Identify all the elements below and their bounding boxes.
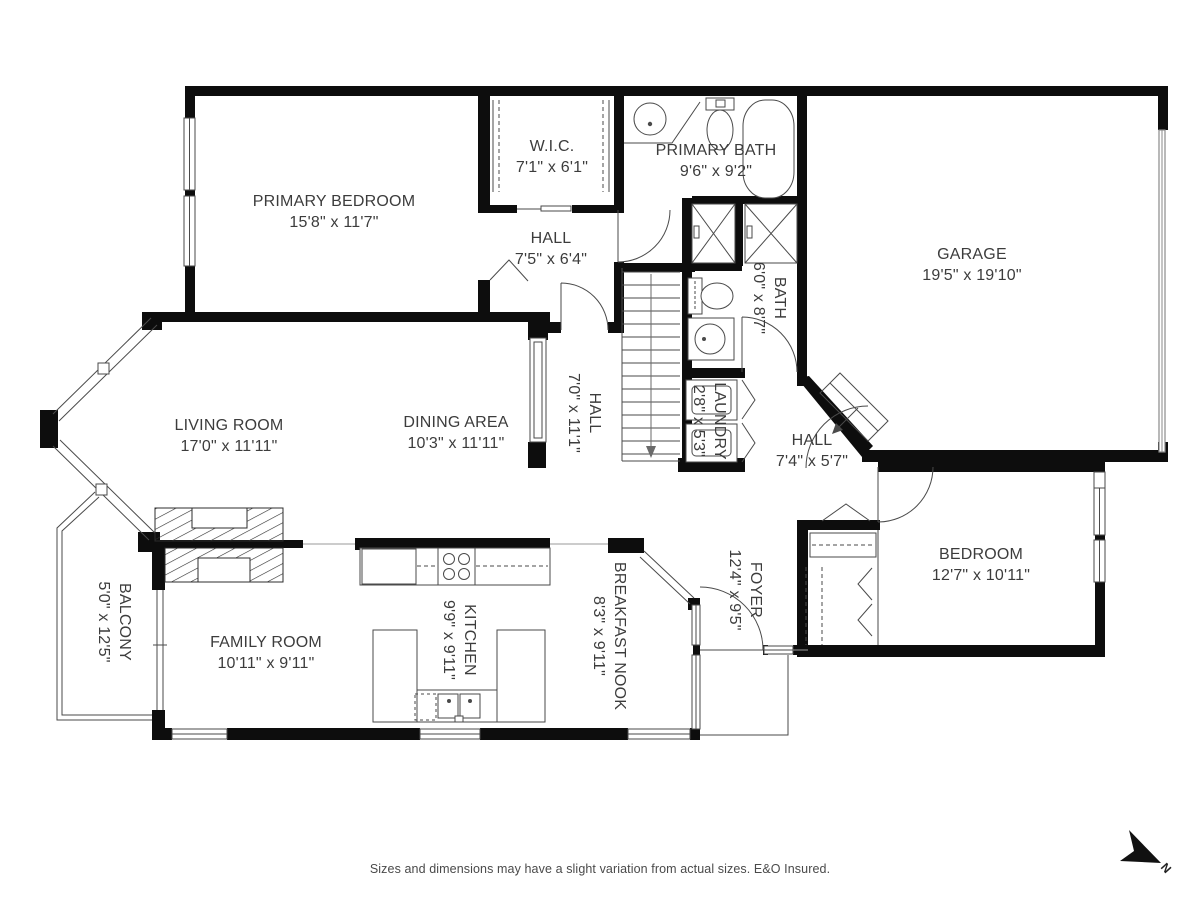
room-dims: 9'6" x 9'2": [656, 161, 777, 182]
room-label-hall-stairs: HALL 7'0" x 11'1": [563, 373, 605, 453]
room-label-garage: GARAGE 19'5" x 19'10": [922, 244, 1021, 286]
bedroom-door-icon: [878, 467, 933, 522]
sink-icon: [634, 103, 666, 135]
room-label-wic: W.I.C. 7'1" x 6'1": [516, 136, 588, 178]
room-dims: 2'8" x 5'3": [688, 382, 709, 460]
room-dims: 6'0" x 8'7": [748, 262, 769, 334]
room-label-dining-area: DINING AREA 10'3" x 11'11": [403, 412, 508, 454]
disclaimer-text: Sizes and dimensions may have a slight v…: [370, 862, 830, 876]
room-dims: 9'9" x 9'11": [438, 600, 459, 680]
hall-door-icon: [561, 283, 608, 330]
hanging-rod-icon: [858, 568, 872, 636]
closet-bifold-icon: [822, 504, 870, 521]
primary-bath-door-icon: [618, 210, 670, 262]
room-dims: 7'4" x 5'7": [776, 451, 848, 472]
room-dims: 19'5" x 19'10": [922, 265, 1021, 286]
floor-plan-canvas: PRIMARY BEDROOM 15'8" x 11'7" W.I.C. 7'1…: [0, 0, 1200, 900]
room-dims: 8'3" x 9'11": [588, 562, 609, 710]
room-dims: 10'11" x 9'11": [210, 653, 322, 674]
room-label-living-room: LIVING ROOM 17'0" x 11'11": [175, 415, 284, 457]
room-name: DINING AREA: [403, 412, 508, 433]
room-label-bedroom: BEDROOM 12'7" x 10'11": [932, 544, 1030, 586]
room-name: FAMILY ROOM: [210, 632, 322, 653]
room-name: W.I.C.: [516, 136, 588, 157]
fridge-icon: [362, 549, 416, 584]
room-name: LIVING ROOM: [175, 415, 284, 436]
room-label-primary-bath: PRIMARY BATH 9'6" x 9'2": [656, 140, 777, 182]
room-label-balcony: BALCONY 5'0" x 12'5": [93, 581, 135, 662]
room-name: PRIMARY BEDROOM: [253, 191, 415, 212]
room-name: HALL: [776, 430, 848, 451]
north-arrow-icon: [1120, 830, 1161, 863]
room-label-breakfast-nook: BREAKFAST NOOK 8'3" x 9'11": [588, 562, 630, 710]
room-name: PRIMARY BATH: [656, 140, 777, 161]
room-name: BREAKFAST NOOK: [609, 562, 630, 710]
island-counter: [373, 630, 417, 722]
stairs: [622, 268, 680, 461]
room-dims: 7'0" x 11'1": [563, 373, 584, 453]
room-name: BEDROOM: [932, 544, 1030, 565]
room-name: HALL: [515, 228, 587, 249]
room-name: BALCONY: [114, 581, 135, 662]
island-counter: [497, 630, 545, 722]
room-dims: 7'5" x 6'4": [515, 249, 587, 270]
room-label-bath: BATH 6'0" x 8'7": [748, 262, 790, 334]
room-name: KITCHEN: [459, 600, 480, 680]
room-dims: 15'8" x 11'7": [253, 212, 415, 233]
porch-outline: [700, 655, 788, 735]
room-name: GARAGE: [922, 244, 1021, 265]
room-dims: 7'1" x 6'1": [516, 157, 588, 178]
room-dims: 17'0" x 11'11": [175, 436, 284, 457]
bedroom-closet: [806, 530, 878, 645]
room-name: LAUNDRY: [709, 382, 730, 460]
stove-icon: [438, 548, 475, 585]
room-label-family-room: FAMILY ROOM 10'11" x 9'11": [210, 632, 322, 674]
bath-fixtures: [688, 278, 734, 360]
room-label-foyer: FOYER 12'4" x 9'5": [724, 549, 766, 630]
room-label-hall-lower: HALL 7'4" x 5'7": [776, 430, 848, 472]
laundry-bifold-icon: [742, 380, 755, 462]
room-dims: 12'4" x 9'5": [724, 549, 745, 630]
room-label-hall-upper: HALL 7'5" x 6'4": [515, 228, 587, 270]
room-dims: 10'3" x 11'11": [403, 433, 508, 454]
room-name: BATH: [769, 262, 790, 334]
kitchen-sink-icon: [460, 694, 480, 718]
kitchen-sink-icon: [438, 694, 458, 718]
wic-slider-icon: [541, 206, 571, 211]
room-dims: 12'7" x 10'11": [932, 565, 1030, 586]
stair-railing: [530, 338, 546, 442]
room-name: HALL: [584, 373, 605, 453]
stairs-down-arrow-icon: [646, 446, 656, 458]
garage-door: [1159, 130, 1165, 452]
room-label-primary-bedroom: PRIMARY BEDROOM 15'8" x 11'7": [253, 191, 415, 233]
room-label-kitchen: KITCHEN 9'9" x 9'11": [438, 600, 480, 680]
room-label-laundry: LAUNDRY 2'8" x 5'3": [688, 382, 730, 460]
room-dims: 5'0" x 12'5": [93, 581, 114, 662]
room-name: FOYER: [745, 549, 766, 630]
